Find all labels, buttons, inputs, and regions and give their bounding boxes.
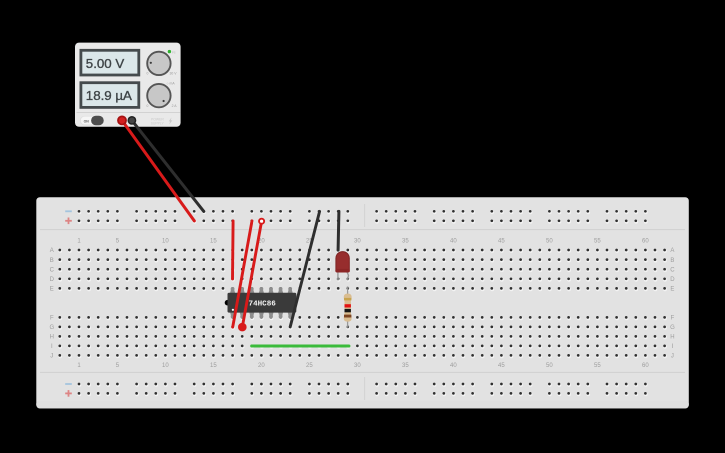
svg-text:J: J <box>671 354 674 360</box>
svg-text:ON: ON <box>84 119 90 123</box>
svg-text:B: B <box>670 258 674 264</box>
svg-text:F: F <box>671 316 675 322</box>
svg-text:10: 10 <box>162 239 169 245</box>
svg-text:G: G <box>49 325 54 331</box>
svg-text:2 A: 2 A <box>172 104 178 108</box>
svg-text:15: 15 <box>210 239 217 245</box>
svg-text:0: 0 <box>147 104 149 108</box>
svg-text:○ mA: ○ mA <box>167 81 176 85</box>
svg-text:A: A <box>50 248 54 254</box>
svg-text:E: E <box>670 287 674 293</box>
svg-text:74HC86: 74HC86 <box>249 301 277 309</box>
svg-text:D: D <box>670 277 675 283</box>
svg-text:D: D <box>50 277 55 283</box>
svg-text:35: 35 <box>402 239 409 245</box>
svg-text:SUPPLY: SUPPLY <box>151 121 165 125</box>
svg-text:45: 45 <box>498 239 505 245</box>
svg-text:15: 15 <box>210 363 217 369</box>
svg-text:45: 45 <box>498 363 505 369</box>
svg-text:A: A <box>670 248 674 254</box>
svg-text:40: 40 <box>450 239 457 245</box>
svg-text:10: 10 <box>162 363 169 369</box>
svg-text:H: H <box>670 335 674 341</box>
svg-text:F: F <box>50 316 54 322</box>
svg-text:55: 55 <box>594 239 601 245</box>
svg-text:50: 50 <box>546 363 553 369</box>
svg-text:PS: PS <box>172 50 176 54</box>
svg-text:C: C <box>670 267 675 273</box>
svg-text:35: 35 <box>402 363 409 369</box>
svg-text:60: 60 <box>642 239 649 245</box>
svg-text:55: 55 <box>594 363 601 369</box>
svg-text:J: J <box>50 354 53 360</box>
svg-text:50: 50 <box>546 239 553 245</box>
svg-text:B: B <box>50 258 54 264</box>
svg-text:H: H <box>50 335 54 341</box>
svg-text:30: 30 <box>354 239 361 245</box>
svg-text:G: G <box>670 325 675 331</box>
svg-text:30 V: 30 V <box>170 72 178 76</box>
svg-text:C: C <box>50 267 55 273</box>
svg-text:18.9 µA: 18.9 µA <box>86 88 132 103</box>
svg-text:40: 40 <box>450 363 457 369</box>
svg-text:30: 30 <box>354 363 361 369</box>
svg-text:25: 25 <box>306 363 313 369</box>
svg-text:0: 0 <box>147 72 149 76</box>
svg-text:E: E <box>50 287 54 293</box>
svg-text:5.00 V: 5.00 V <box>86 56 125 71</box>
svg-text:60: 60 <box>642 363 649 369</box>
svg-text:20: 20 <box>258 363 265 369</box>
